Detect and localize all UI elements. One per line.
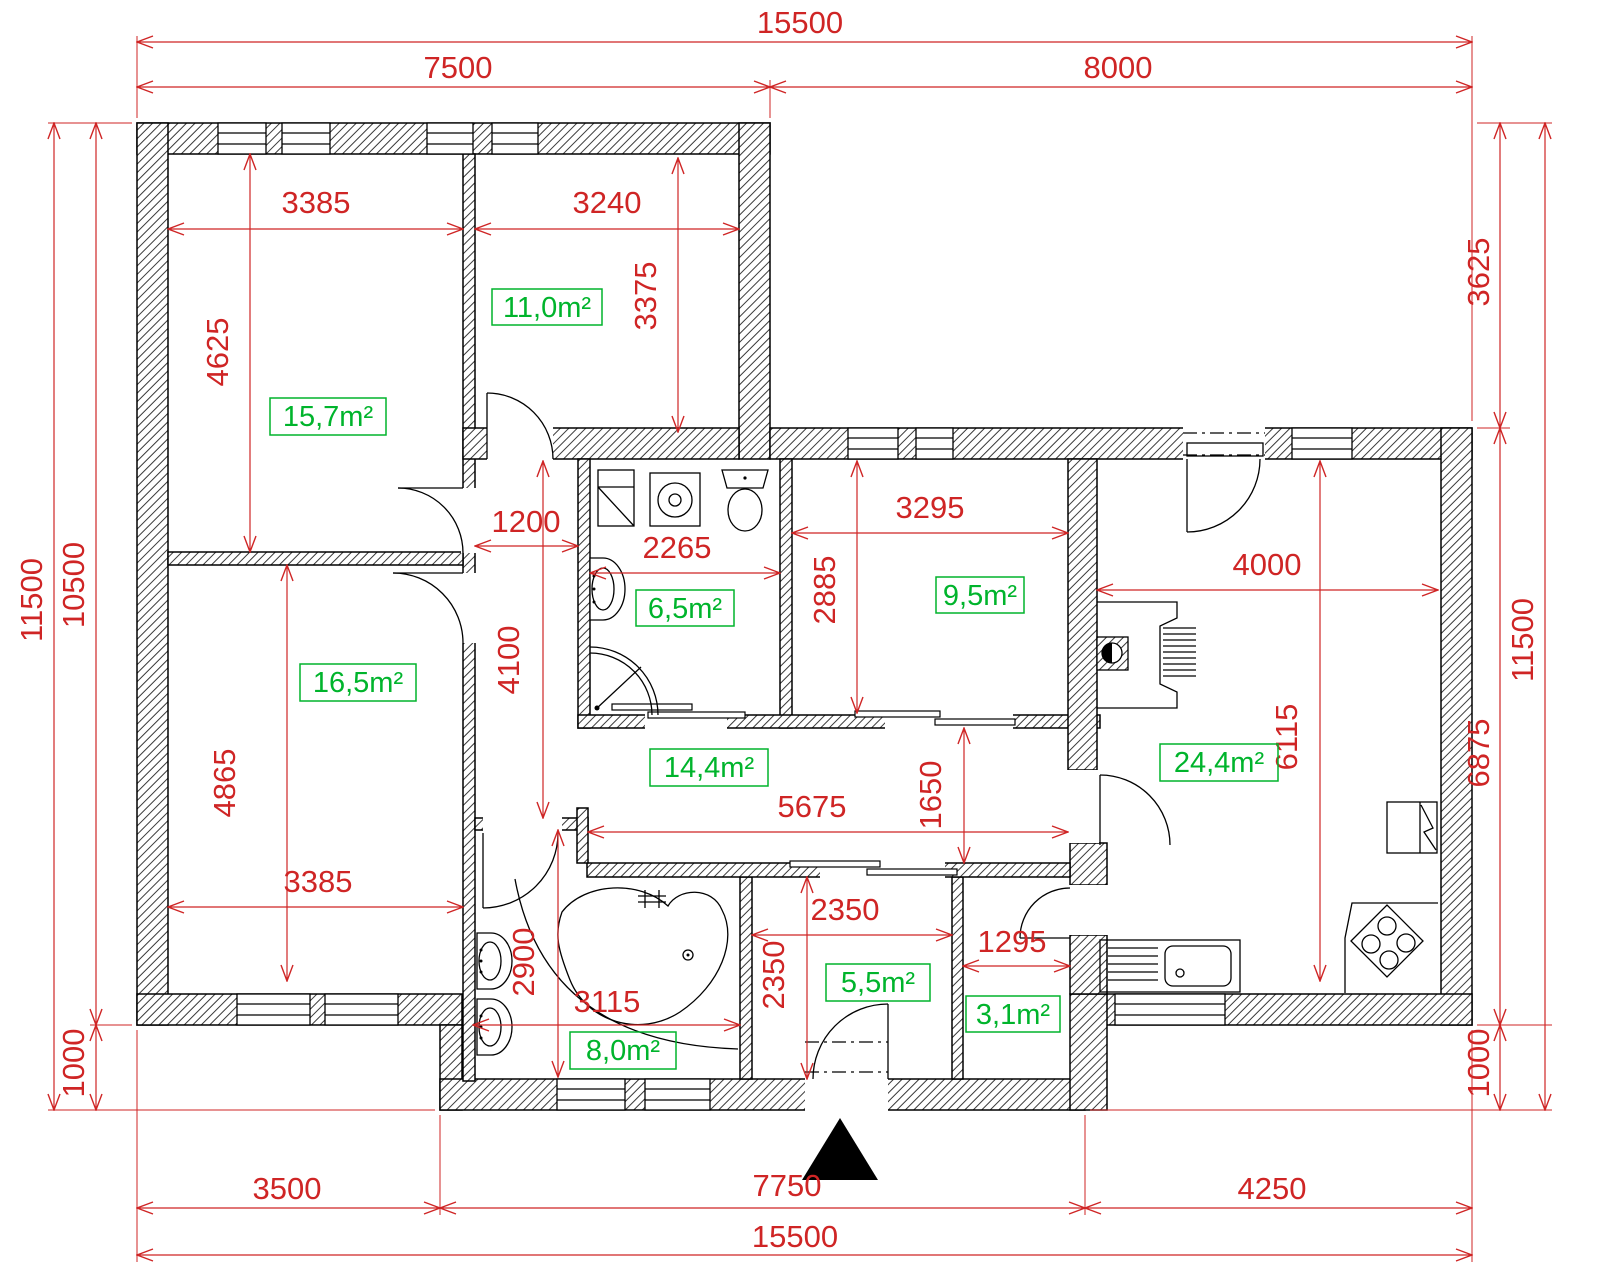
window (492, 123, 538, 154)
dim-bed4-h: 4865 (207, 749, 242, 818)
dim-top-right: 8000 (1084, 50, 1153, 85)
area-label-vestibule: 5,5m² (826, 964, 930, 1001)
dim-left-total: 11500 (14, 558, 49, 642)
window (848, 428, 898, 459)
dim-bottom-total: 15500 (752, 1219, 838, 1254)
dim-bed4-w: 3385 (284, 864, 353, 899)
window (916, 428, 953, 459)
dim-top-left: 7500 (424, 50, 493, 85)
area-label-bath-top: 6,5m² (636, 590, 734, 626)
dim-left-porch: 1000 (56, 1029, 91, 1098)
dim-right-offset: 3625 (1461, 238, 1496, 307)
wall-left-exterior (137, 123, 168, 1025)
svg-text:15,7m²: 15,7m² (283, 401, 374, 433)
dim-living-w: 4000 (1233, 547, 1302, 582)
area-label-living: 24,4m² (1160, 744, 1278, 781)
sink-icon (477, 999, 512, 1055)
svg-text:5,5m²: 5,5m² (841, 967, 915, 999)
wall-porch-bottom (440, 1079, 1085, 1110)
dim-bed3-w: 3295 (896, 490, 965, 525)
wall-int-bath-bottom-right (740, 877, 752, 1079)
wall-int-pantry-right-lower (1070, 935, 1107, 994)
window (427, 123, 473, 154)
svg-text:24,4m²: 24,4m² (1174, 747, 1265, 779)
toilet-icon (722, 470, 768, 531)
door-bed4 (393, 573, 463, 643)
door-living (1100, 775, 1170, 845)
area-label-bed1: 15,7m² (270, 398, 386, 435)
cooktop-icon (1351, 905, 1423, 977)
door-entrance (805, 1004, 888, 1079)
wall-int-bed1-bed4 (168, 552, 463, 565)
dim-hall-w: 5675 (778, 789, 847, 824)
window (218, 123, 266, 154)
area-label-hall: 14,4m² (650, 749, 768, 786)
dim-bed2-w: 3240 (573, 185, 642, 220)
wall-int-pantry-right-upper (1070, 843, 1107, 885)
window (237, 994, 310, 1025)
dim-right-total: 11500 (1505, 598, 1540, 682)
wall-porch-right (1070, 994, 1107, 1110)
wall-int-vestibule-pantry (952, 877, 963, 1079)
dim-corridor-h: 4100 (491, 626, 526, 695)
dim-hall-h: 1650 (913, 761, 948, 830)
area-label-bed2: 11,0m² (492, 289, 602, 325)
dim-bottom-mid: 7750 (753, 1168, 822, 1203)
door-bath-bottom (483, 833, 558, 908)
kitchen-sink-icon (1100, 940, 1240, 992)
dim-top-total: 15500 (757, 5, 843, 40)
dim-bed1-w: 3385 (282, 185, 351, 220)
dim-bath-top-w: 2265 (643, 530, 712, 565)
dim-right-main: 6875 (1461, 719, 1496, 788)
area-label-pantry: 3,1m² (966, 996, 1060, 1032)
fridge-icon (1387, 802, 1437, 853)
wall-int-living-left (1068, 459, 1097, 770)
dimension-lines (48, 36, 1552, 1262)
dim-pantry-w: 1295 (978, 924, 1047, 959)
svg-text:9,5m²: 9,5m² (943, 580, 1017, 612)
window (645, 1079, 710, 1110)
window (1292, 428, 1352, 459)
cabinet-icon (598, 470, 634, 526)
svg-text:14,4m²: 14,4m² (664, 752, 755, 784)
corner-bathtub-icon (515, 879, 738, 1049)
area-label-bed3: 9,5m² (936, 577, 1024, 613)
wall-int-bath-top-left (578, 459, 590, 728)
area-label-bed4: 16,5m² (300, 664, 416, 701)
wall-int-bath-top-right (780, 459, 792, 728)
svg-text:16,5m²: 16,5m² (313, 667, 404, 699)
wall-int-stub (577, 808, 588, 863)
dim-bed3-h: 2885 (807, 556, 842, 625)
dim-bath-bottom-h: 2900 (506, 928, 541, 997)
window (1115, 994, 1225, 1025)
dim-vestibule-h: 2350 (756, 941, 791, 1010)
walls (137, 123, 1472, 1110)
dim-living-h: 6115 (1269, 704, 1304, 771)
svg-text:6,5m²: 6,5m² (648, 593, 722, 625)
floor-plan-page: 15500 7500 8000 3500 7750 4250 15500 115… (0, 0, 1600, 1280)
dimension-labels: 15500 7500 8000 3500 7750 4250 15500 115… (14, 5, 1540, 1254)
dim-bath-bottom-w: 3115 (574, 984, 641, 1019)
wall-mid-vertical-upper (739, 123, 770, 459)
fireplace-icon (1097, 602, 1196, 708)
window (325, 994, 398, 1025)
dim-bottom-left: 3500 (253, 1171, 322, 1206)
svg-text:8,0m²: 8,0m² (586, 1035, 660, 1067)
dim-vestibule-w: 2350 (811, 892, 880, 927)
sink-icon (590, 558, 625, 620)
dim-bottom-right: 4250 (1238, 1171, 1307, 1206)
area-label-bath-bottom: 8,0m² (570, 1032, 676, 1069)
door-bed1 (398, 488, 463, 553)
washing-machine-icon (650, 473, 700, 526)
svg-text:3,1m²: 3,1m² (976, 999, 1050, 1031)
dim-bed2-h: 3375 (628, 262, 663, 331)
dim-right-porch: 1000 (1461, 1029, 1496, 1098)
floor-plan-canvas: 15500 7500 8000 3500 7750 4250 15500 115… (0, 0, 1600, 1280)
window (282, 123, 330, 154)
dim-bed1-h: 4625 (200, 318, 235, 387)
window (557, 1079, 625, 1110)
svg-text:11,0m²: 11,0m² (503, 292, 591, 324)
dim-left-main: 10500 (56, 542, 91, 628)
dim-corridor-w: 1200 (492, 504, 561, 539)
